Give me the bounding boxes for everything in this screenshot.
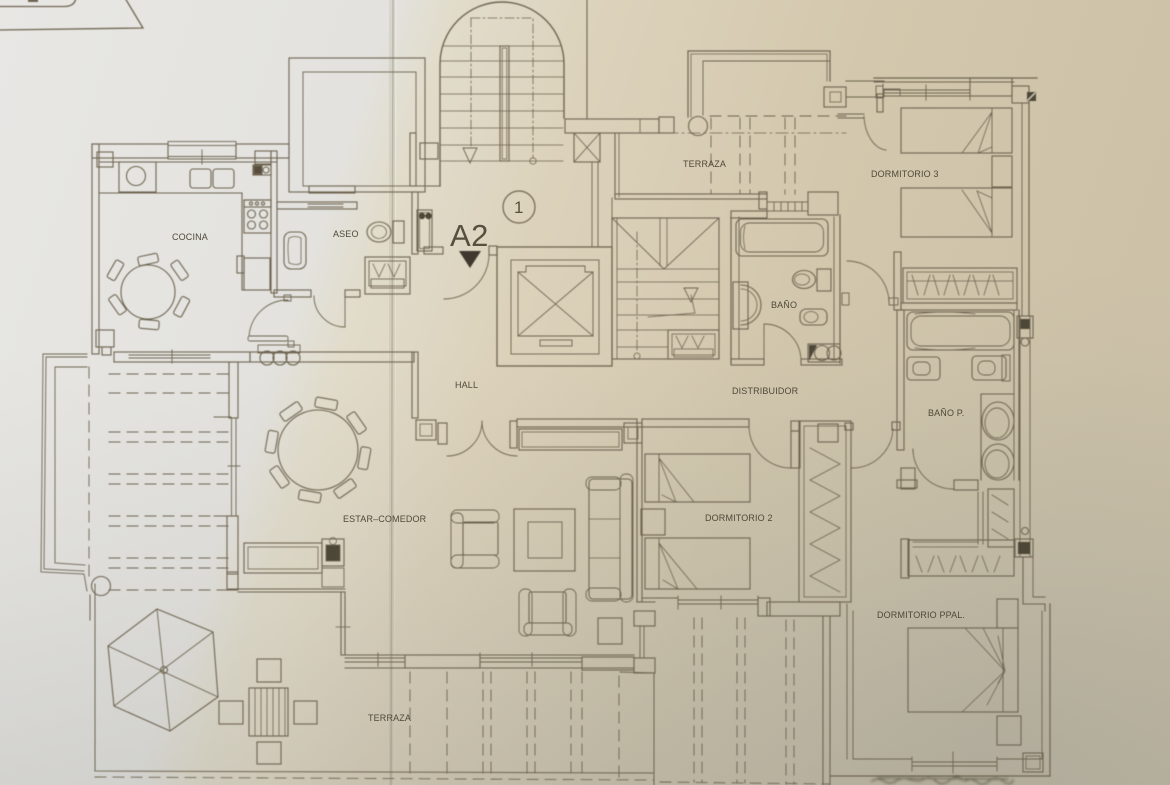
svg-text:BAÑO P.: BAÑO P. — [928, 408, 964, 418]
svg-text:TERRAZA: TERRAZA — [683, 159, 726, 169]
svg-text:HALL: HALL — [455, 380, 478, 390]
svg-text:DORMITORIO 2: DORMITORIO 2 — [705, 513, 773, 523]
svg-text:DORMITORIO 3: DORMITORIO 3 — [871, 169, 939, 179]
svg-text:ASEO: ASEO — [333, 229, 359, 239]
svg-text:BAÑO: BAÑO — [771, 300, 797, 310]
svg-text:1: 1 — [514, 198, 524, 217]
svg-text:A2: A2 — [450, 218, 489, 253]
svg-text:COCINA: COCINA — [172, 232, 208, 242]
svg-text:ESTAR–COMEDOR: ESTAR–COMEDOR — [343, 514, 427, 524]
svg-text:DISTRIBUIDOR: DISTRIBUIDOR — [732, 386, 799, 396]
svg-text:DORMITORIO PPAL.: DORMITORIO PPAL. — [877, 610, 965, 620]
svg-text:TERRAZA: TERRAZA — [368, 713, 411, 723]
